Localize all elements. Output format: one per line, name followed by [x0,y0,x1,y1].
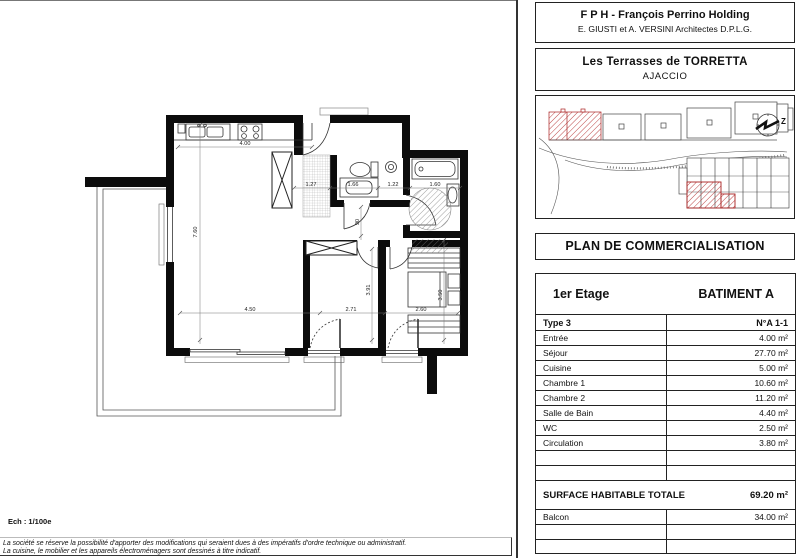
site-plan-box: Z [535,95,795,219]
table-empty-row [536,466,796,481]
room-area: 4.40 m² [667,406,796,421]
stove [238,124,262,140]
room-area: 11.20 m² [667,391,796,406]
compass-letter: Z [781,117,786,126]
disclaimer-line1: La société se réserve la possibilité d'a… [3,540,511,548]
building-footprint [679,158,789,208]
building-elevations [549,102,793,140]
table-row: Chambre 1 10.60 m² [536,376,796,391]
floor-label: 1er Etage [553,287,609,301]
room-label: WC [536,421,667,436]
dim-sejour-width: 4.50 [245,307,256,313]
bathtub [412,159,458,179]
unit-number: N°A 1-1 [667,315,796,331]
site-plan-drawing: Z [537,96,794,217]
wc-washbasin [340,178,378,197]
title-block-firm: F P H - François Perrino Holding E. GIUS… [535,2,795,43]
total-area: 69.20 m² [750,490,788,501]
room-label: Circulation [536,436,667,451]
kitchen-sink [186,124,230,140]
architects-name: E. GIUSTI et A. VERSINI Architectes D.P.… [536,24,794,34]
project-city: AJACCIO [536,71,794,82]
room-area: 4.00 m² [667,331,796,346]
dim-bath-width: 1.60 [430,182,441,188]
disclaimer-line2: La cuisine, le mobilier et les appareils… [3,548,511,556]
kitchen [174,123,312,140]
dim-kitchen-width: 4.00 [240,141,251,147]
bedroom1-closet [306,241,357,255]
table-empty-row [536,540,796,554]
room-label: Cuisine [536,361,667,376]
table-total-row: SURFACE HABITABLE TOTALE 69.20 m² [536,481,796,510]
wc-room [340,162,397,198]
plan-sheet: 4.00 1.27 1.66 1.22 1.60 4.50 2.71 2.60 … [0,0,800,558]
surface-table-box: 1er Etage BATIMENT A Type 3 N°A 1-1 Entr… [535,273,795,554]
floor-plan-drawing: 4.00 1.27 1.66 1.22 1.60 4.50 2.71 2.60 … [0,0,517,558]
table-type-row: Type 3 N°A 1-1 [536,315,796,331]
room-label: Entrée [536,331,667,346]
entrance-door [303,123,330,155]
title-block-project: Les Terrasses de TORRETTA AJACCIO [535,48,795,91]
bedroom1-french-door [310,319,340,348]
dim-chambre1-width: 2.71 [346,307,357,313]
room-area: 2.50 m² [667,421,796,436]
balcony-area: 34.00 m² [667,510,796,525]
room-label: Chambre 2 [536,391,667,406]
dim-sejour-height: 7.60 [193,227,199,238]
table-row: WC 2.50 m² [536,421,796,436]
commode [408,315,460,333]
highlighted-unit-footprint [687,182,721,208]
room-area: 5.00 m² [667,361,796,376]
kitchen-cabinet [178,124,185,133]
room-label: Séjour [536,346,667,361]
dim-entry-width: 1.27 [306,182,317,188]
highlighted-building-elevation [549,112,601,140]
closet-column [272,152,292,208]
wc-corner-basin [386,162,397,173]
firm-name: F P H - François Perrino Holding [536,9,794,21]
bedroom1-door [357,247,378,268]
table-row: Chambre 2 11.20 m² [536,391,796,406]
project-name: Les Terrasses de TORRETTA [536,56,794,68]
room-area: 3.80 m² [667,436,796,451]
table-row: Salle de Bain 4.40 m² [536,406,796,421]
nightstand [448,274,460,288]
entrance-landing [320,108,368,115]
table-balcony-row: Balcon 34.00 m² [536,510,796,525]
dim-chambre2-height: 3.50 [438,290,444,301]
bathroom [409,159,459,230]
dim-hall-width: 1.22 [388,182,399,188]
dim-circulation: 90 [355,219,361,225]
room-label: Chambre 1 [536,376,667,391]
unit-type: Type 3 [536,315,667,331]
room-label: Salle de Bain [536,406,667,421]
table-row: Circulation 3.80 m² [536,436,796,451]
building-label: BATIMENT A [698,287,774,301]
balcony-label: Balcon [536,510,667,525]
dim-chambre1-height: 3.91 [366,285,372,296]
total-label: SURFACE HABITABLE TOTALE [543,490,685,501]
table-empty-row [536,451,796,466]
table-row: Séjour 27.70 m² [536,346,796,361]
surface-table: 1er Etage BATIMENT A Type 3 N°A 1-1 Entr… [535,273,796,554]
dim-chambre2-width: 2.60 [416,307,427,313]
bedroom2-furniture [408,239,460,333]
plan-title: PLAN DE COMMERCIALISATION [536,234,794,259]
turning-circle [409,188,451,230]
room-area: 10.60 m² [667,376,796,391]
bedroom2-french-door [388,319,418,348]
nightstand [448,291,460,305]
plan-title-box: PLAN DE COMMERCIALISATION [535,233,795,260]
toilet [350,162,378,177]
table-row: Entrée 4.00 m² [536,331,796,346]
table-row: Cuisine 5.00 m² [536,361,796,376]
scale-label: Ech : 1/100e [8,517,51,526]
table-empty-row [536,525,796,540]
table-header-row: 1er Etage BATIMENT A [536,274,796,315]
dim-wc-width: 1.66 [348,182,359,188]
disclaimer-box: La société se réserve la possibilité d'a… [0,537,512,556]
room-area: 27.70 m² [667,346,796,361]
